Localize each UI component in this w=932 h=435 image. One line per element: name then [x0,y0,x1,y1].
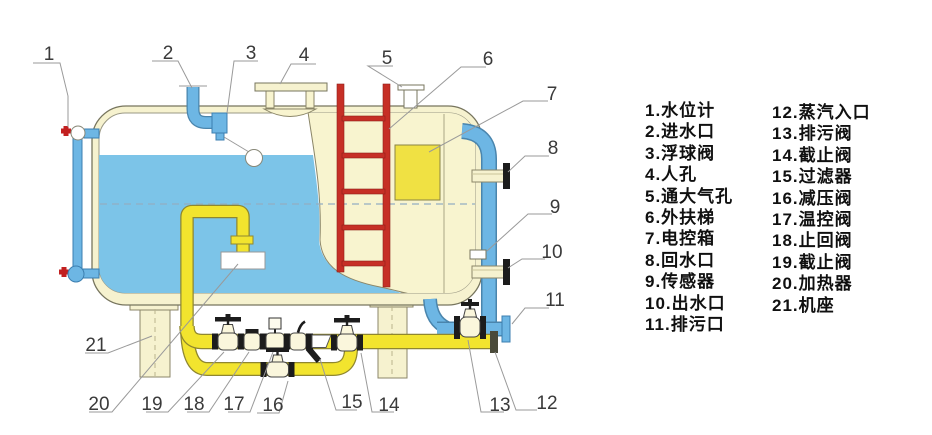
callout-15: 15 [341,392,362,413]
legend-item: 15.过滤器 [772,166,871,187]
legend-item: 4.人孔 [645,164,733,185]
float-ball [246,150,263,167]
legend-item: 7.电控箱 [645,228,733,249]
drain-outlet-flange [502,316,510,342]
callout-2: 2 [163,43,174,64]
machine-base-left-leg [130,298,178,377]
temp-control-valve-17 [266,318,290,350]
legend-item: 8.回水口 [645,250,733,271]
lever-valve [290,322,313,351]
legend-item: 11.排污口 [645,314,733,335]
legend-item: 12.蒸汽入口 [772,102,871,123]
callout-7: 7 [547,84,558,105]
legend-item: 1.水位计 [645,100,733,121]
legend-item: 3.浮球阀 [645,143,733,164]
steam-inlet-flange [490,331,498,353]
gauge-valve-cross-bottom [59,267,69,277]
callout-9: 9 [550,197,561,218]
legend-item: 21.机座 [772,295,871,316]
boiler-tank-diagram: 1 2 3 4 5 6 7 8 9 10 11 12 13 14 15 16 1… [0,0,932,435]
callout-13: 13 [489,395,510,416]
legend-item: 18.止回阀 [772,230,871,251]
vent-pipe [398,85,424,108]
legend-item: 9.传感器 [645,271,733,292]
legend-item: 16.减压阀 [772,188,871,209]
legend-item: 2.进水口 [645,121,733,142]
callout-21: 21 [85,335,106,356]
check-valve-18 [244,329,267,350]
callout-10: 10 [541,242,562,263]
callout-20: 20 [88,394,109,415]
callout-4: 4 [299,45,310,66]
legend-column-2: 12.蒸汽入口 13.排污阀 14.截止阀 15.过滤器 16.减压阀 17.温… [772,102,871,316]
callout-1: 1 [44,44,55,65]
legend-item: 19.截止阀 [772,252,871,273]
callout-11: 11 [545,290,565,311]
legend-item: 17.温控阀 [772,209,871,230]
callout-17: 17 [223,394,244,415]
legend-item: 10.出水口 [645,293,733,314]
callout-8: 8 [548,138,559,159]
control-box [395,145,440,200]
gauge-valve-cross-top [61,126,71,136]
sensor-stub [470,250,486,259]
legend-column-1: 1.水位计 2.进水口 3.浮球阀 4.人孔 5.通大气孔 6.外扶梯 7.电控… [645,100,733,335]
legend-item: 6.外扶梯 [645,207,733,228]
callout-12: 12 [536,393,557,414]
callout-19: 19 [141,394,162,415]
callout-16: 16 [262,395,283,416]
callout-6: 6 [483,49,494,70]
callout-5: 5 [382,48,393,69]
callout-14: 14 [378,395,400,416]
stop-valve-19 [212,314,244,350]
legend-item: 13.排污阀 [772,123,871,144]
callout-18: 18 [183,394,204,415]
callout-3: 3 [246,43,257,64]
legend-item: 14.截止阀 [772,145,871,166]
float-valve [212,113,227,133]
legend-item: 5.通大气孔 [645,186,733,207]
heater [221,252,265,269]
stop-valve-14 [331,315,363,351]
legend-item: 20.加热器 [772,273,871,294]
